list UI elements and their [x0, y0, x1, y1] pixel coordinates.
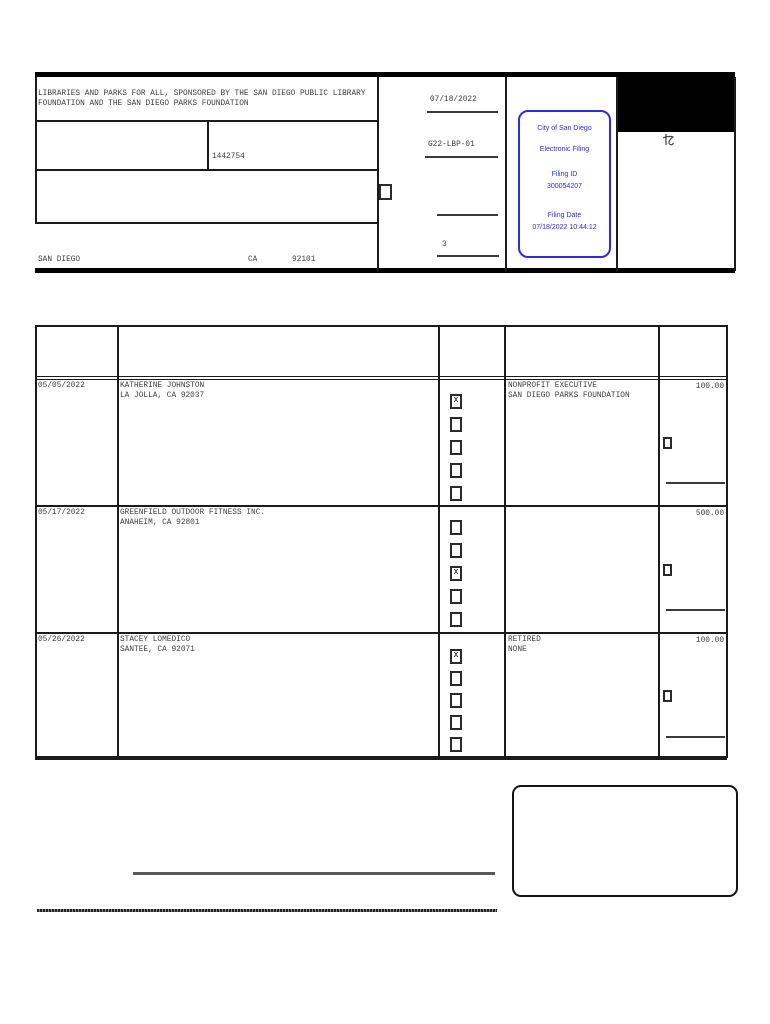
- row-divider-2: [35, 632, 727, 634]
- header-bottom-bar: [35, 268, 735, 273]
- contributor-address: SANTEE, CA 92071: [120, 646, 195, 656]
- occupation: NONPROFIT EXECUTIVE: [508, 382, 597, 392]
- checkbox-other[interactable]: [450, 440, 462, 455]
- committee-id-number: 1442754: [212, 153, 245, 163]
- header-checkbox[interactable]: [379, 184, 392, 200]
- page-number: 3: [442, 241, 447, 251]
- row-divider-1: [35, 505, 727, 507]
- redacted-black-box: [617, 72, 735, 132]
- amount-checkbox[interactable]: [663, 437, 672, 449]
- scan-mark-icon: [661, 132, 677, 153]
- amount-underline: [666, 609, 725, 611]
- amount-checkbox[interactable]: [663, 690, 672, 702]
- header-rule-3: [35, 222, 378, 224]
- row-date: 05/17/2022: [38, 509, 85, 519]
- checkbox-individual[interactable]: [450, 520, 462, 535]
- header-divider-3: [616, 77, 618, 271]
- row-date: 05/05/2022: [38, 382, 85, 392]
- filing-code-underline: [425, 156, 498, 158]
- committee-name: LIBRARIES AND PARKS FOR ALL, SPONSORED B…: [38, 90, 366, 109]
- stamp-filing-date-label: Filing Date: [520, 211, 609, 220]
- header-left-rule: [35, 77, 37, 223]
- amount-underline: [666, 736, 725, 738]
- employer: SAN DIEGO PARKS FOUNDATION: [508, 392, 630, 402]
- table-col-rule-3: [504, 325, 506, 758]
- stamp-efiling-line: Electronic Filing: [520, 145, 609, 154]
- contributor-name: KATHERINE JOHNSTON: [120, 382, 204, 392]
- checkbox-scc[interactable]: [450, 737, 462, 752]
- blank-field-underline: [437, 214, 498, 216]
- header-right-rule: [734, 77, 736, 271]
- contributor-address: LA JOLLA, CA 92037: [120, 392, 204, 402]
- committee-state: CA: [248, 256, 257, 266]
- checkbox-individual[interactable]: X: [450, 649, 462, 664]
- electronic-filing-stamp: City of San Diego Electronic Filing Fili…: [518, 110, 611, 258]
- subtotal-line: [133, 872, 495, 875]
- checkbox-other[interactable]: X: [450, 566, 462, 581]
- contribution-amount: 500.00: [658, 510, 727, 518]
- checkbox-scc[interactable]: [450, 486, 462, 501]
- id-cell-divider: [207, 120, 209, 170]
- statement-date: 07/18/2022: [430, 96, 477, 106]
- contribution-amount: 100.00: [658, 383, 727, 391]
- table-col-rule-0: [35, 325, 37, 758]
- employer: NONE: [508, 646, 527, 656]
- table-col-rule-1: [117, 325, 119, 758]
- contributor-type-checkboxes: X: [450, 649, 462, 752]
- contributor-address: ANAHEIM, CA 92801: [120, 519, 200, 529]
- table-bottom-rule: [35, 756, 727, 760]
- table-headrow-rule-b: [35, 379, 727, 380]
- checkbox-committee[interactable]: [450, 543, 462, 558]
- occupation: RETIRED: [508, 636, 541, 646]
- stamp-city-line: City of San Diego: [520, 124, 609, 133]
- checkbox-pty[interactable]: [450, 715, 462, 730]
- table-headrow-rule-a: [35, 376, 727, 377]
- row-date: 05/26/2022: [38, 636, 85, 646]
- footer-line: [37, 909, 497, 912]
- header-rule-2: [35, 169, 378, 171]
- statement-date-underline: [427, 111, 498, 113]
- header-divider-2: [505, 77, 507, 271]
- contributor-type-checkboxes: X: [450, 394, 462, 501]
- stamp-filing-id-label: Filing ID: [520, 170, 609, 179]
- stamp-filing-date-value: 07/18/2022 10:44:12: [520, 223, 609, 232]
- header-divider-1: [377, 77, 379, 271]
- checkbox-scc[interactable]: [450, 612, 462, 627]
- contributor-name: GREENFIELD OUTDOOR FITNESS INC.: [120, 509, 265, 519]
- page-number-underline: [437, 255, 499, 257]
- totals-box: [512, 785, 738, 897]
- contributor-type-checkboxes: X: [450, 520, 462, 627]
- checkbox-other[interactable]: [450, 693, 462, 708]
- committee-zip: 92101: [292, 256, 315, 266]
- amount-underline: [666, 482, 725, 484]
- committee-city: SAN DIEGO: [38, 256, 80, 266]
- checkbox-pty[interactable]: [450, 589, 462, 604]
- table-top-rule: [35, 325, 727, 327]
- checkbox-individual[interactable]: X: [450, 394, 462, 409]
- checkbox-pty[interactable]: [450, 463, 462, 478]
- checkbox-committee[interactable]: [450, 671, 462, 686]
- stamp-filing-id-value: 300054207: [520, 182, 609, 191]
- form-page: LIBRARIES AND PARKS FOR ALL, SPONSORED B…: [0, 0, 770, 1024]
- table-col-rule-2: [438, 325, 440, 758]
- contribution-amount: 100.00: [658, 637, 727, 645]
- checkbox-committee[interactable]: [450, 417, 462, 432]
- amount-checkbox[interactable]: [663, 564, 672, 576]
- contributor-name: STACEY LOMEDICO: [120, 636, 190, 646]
- filing-code: G22-LBP-01: [428, 141, 475, 151]
